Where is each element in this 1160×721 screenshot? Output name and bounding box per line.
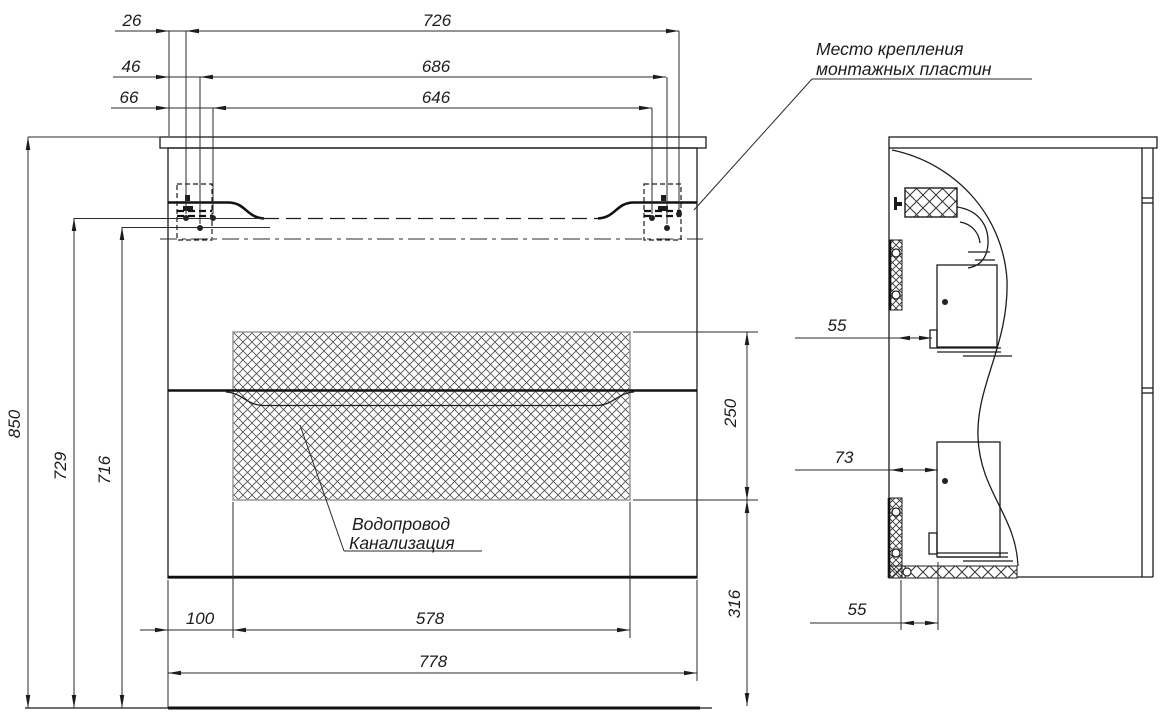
side-view — [889, 137, 1157, 578]
technical-drawing-page: 26 46 66 726 686 646 850 729 716 250 316 — [0, 0, 1160, 721]
dim-label-250: 250 — [721, 398, 740, 428]
dim-label-26: 26 — [122, 11, 142, 30]
drawing-canvas: 26 46 66 726 686 646 850 729 716 250 316 — [0, 0, 1160, 721]
dim-label-729: 729 — [51, 451, 70, 480]
front-view — [25, 137, 712, 708]
back-panel-notches — [1142, 198, 1153, 393]
countertop — [160, 137, 706, 148]
dim-label-778: 778 — [419, 652, 448, 671]
mounting-plate-left — [177, 184, 216, 240]
dim-label-46: 46 — [122, 57, 141, 76]
plumbing-label-line2: Канализация — [349, 533, 455, 553]
side-drawer-lower — [929, 442, 1013, 561]
bottom-panel-strip — [890, 566, 1017, 578]
dimensions-left: 850 729 716 — [5, 137, 270, 708]
utility-hatch-area — [233, 332, 630, 500]
dim-label-side-55-top: 55 — [828, 316, 847, 335]
annotation-mounting: Место крепления монтажных пластин — [694, 39, 1032, 210]
plumbing-label-line1: Водопровод — [352, 514, 450, 534]
mounting-label-line2: монтажных пластин — [816, 59, 992, 79]
mounting-label-line1: Место крепления — [816, 39, 964, 59]
dim-label-646: 646 — [422, 88, 451, 107]
side-drawer-upper — [930, 265, 1012, 356]
dim-label-726: 726 — [423, 11, 452, 30]
dim-label-73: 73 — [835, 448, 854, 467]
dimensions-right: 250 316 — [633, 332, 758, 706]
dim-label-66: 66 — [120, 88, 139, 107]
dim-label-100: 100 — [186, 609, 215, 628]
dim-label-578: 578 — [416, 609, 445, 628]
dim-label-716: 716 — [95, 455, 114, 484]
siphon-block — [905, 188, 957, 217]
basin-underside-curves — [957, 207, 995, 268]
dim-label-side-55-bottom: 55 — [848, 600, 867, 619]
side-countertop — [889, 137, 1157, 148]
wall-rail-upper — [890, 240, 902, 310]
dim-label-850: 850 — [5, 409, 24, 438]
dim-label-686: 686 — [422, 57, 451, 76]
dimensions-side: 55 73 55 — [795, 316, 938, 630]
mounting-plate-right — [644, 184, 682, 240]
upper-drawer-wave — [168, 203, 697, 219]
dim-label-316: 316 — [725, 589, 744, 618]
siphon-bracket — [894, 197, 902, 210]
dimensions-top: 26 46 66 726 686 646 — [111, 11, 679, 224]
